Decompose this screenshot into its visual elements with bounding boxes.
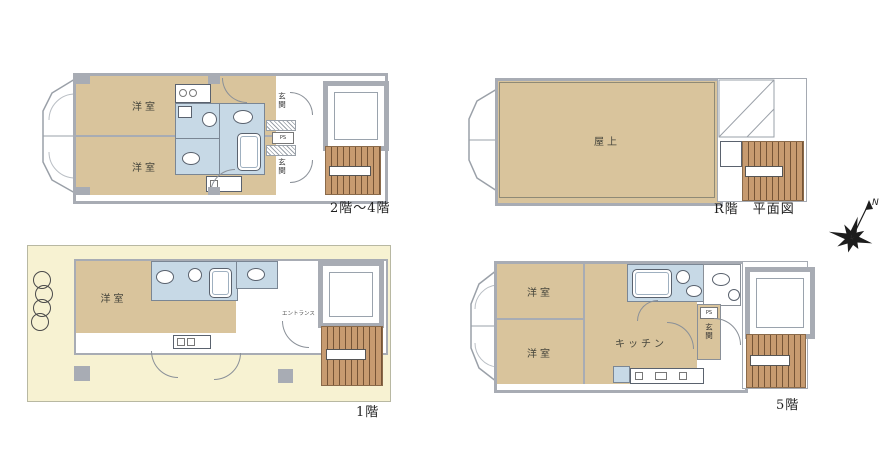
staircase bbox=[746, 334, 806, 388]
column bbox=[76, 76, 90, 84]
caption-1f: 1階 bbox=[356, 401, 379, 420]
caption-5f: 5階 bbox=[776, 394, 799, 413]
elevator-cab bbox=[756, 278, 804, 328]
shaft-hatch bbox=[266, 145, 296, 156]
column bbox=[208, 76, 220, 84]
elevator-cab bbox=[334, 92, 378, 140]
door-swing-icon bbox=[282, 321, 309, 348]
wall-segment bbox=[219, 104, 220, 174]
room-label: 洋室 bbox=[101, 290, 127, 305]
sink-icon bbox=[188, 268, 202, 282]
room-west-upper: 洋室 bbox=[497, 264, 583, 318]
balcony-bay-icon bbox=[468, 88, 498, 192]
open-shaft-icon bbox=[718, 79, 776, 139]
column bbox=[208, 187, 220, 195]
kitchenette-counter bbox=[175, 84, 211, 103]
wall-segment bbox=[176, 138, 219, 139]
room-label: 屋上 bbox=[594, 133, 620, 148]
staircase bbox=[321, 326, 383, 386]
entrance-label: 玄関 bbox=[705, 323, 713, 340]
toilet-icon bbox=[182, 152, 200, 165]
building-outline: 洋室 洋室 キッチン PS 玄関 bbox=[494, 261, 748, 393]
door-swing-icon bbox=[214, 353, 241, 380]
elevator-shaft bbox=[318, 261, 384, 328]
sink-icon bbox=[676, 270, 690, 284]
door-swing-icon bbox=[290, 92, 313, 115]
room-label: 洋室 bbox=[527, 284, 553, 299]
pipe-space-label: PS bbox=[272, 132, 294, 144]
compass-rose-icon: N bbox=[822, 196, 892, 266]
staircase bbox=[742, 141, 804, 201]
room-west-lower: 洋室 bbox=[497, 320, 583, 384]
stair-rail bbox=[326, 349, 366, 360]
caption-2f-4f: 2階〜4階 bbox=[330, 197, 391, 216]
bathroom-block bbox=[175, 103, 265, 175]
shaft-hatch bbox=[266, 120, 296, 131]
stair-rail bbox=[329, 166, 371, 176]
toilet-room bbox=[236, 261, 278, 289]
kitchen-label: キッチン bbox=[615, 335, 667, 350]
floorplan-sheet: { "sheet": { "background": "#ffffff" }, … bbox=[0, 0, 894, 472]
toilet-room bbox=[703, 264, 741, 306]
stair-hall-outline bbox=[717, 78, 807, 202]
room-label: 洋室 bbox=[527, 345, 553, 360]
bathroom-block bbox=[627, 264, 705, 302]
toilet-icon bbox=[156, 270, 174, 284]
north-label: N bbox=[872, 198, 879, 208]
washer-icon bbox=[178, 106, 192, 118]
bathtub-icon bbox=[209, 268, 232, 298]
kitchen-counter bbox=[630, 368, 704, 384]
stair-rail bbox=[745, 166, 783, 177]
stair-rail bbox=[750, 355, 790, 366]
landing-box bbox=[720, 141, 742, 167]
room-label: 洋室 bbox=[132, 159, 158, 174]
column bbox=[278, 369, 293, 383]
building-outline: 洋室 洋室 玄関 玄関 PS bbox=[73, 73, 388, 204]
door-swing-icon bbox=[290, 160, 313, 183]
toilet-icon bbox=[712, 273, 730, 286]
bathtub-icon bbox=[632, 269, 672, 298]
column bbox=[76, 187, 90, 195]
kitchenette-counter bbox=[173, 335, 211, 349]
stair-hall-outline bbox=[742, 261, 808, 389]
plan-1f: 洋室 エントランス bbox=[27, 245, 391, 402]
room-west: 洋室 bbox=[76, 261, 151, 333]
sink-icon bbox=[202, 112, 217, 127]
bathroom-block bbox=[151, 261, 238, 301]
room-label: 洋室 bbox=[132, 98, 158, 113]
plan-roof: 屋上 bbox=[468, 78, 808, 202]
toilet-icon bbox=[233, 110, 253, 124]
toilet-icon bbox=[686, 285, 702, 297]
shrub-icon bbox=[31, 313, 49, 331]
staircase bbox=[325, 146, 381, 195]
elevator-cab bbox=[329, 272, 373, 317]
caption-roof: R階 平面図 bbox=[714, 198, 795, 217]
kitchen-sink-icon bbox=[613, 366, 630, 383]
entrance-label: 玄関 bbox=[278, 158, 286, 175]
column bbox=[74, 366, 90, 381]
entrance-hall-label: エントランス bbox=[282, 309, 315, 317]
entrance-label: 玄関 bbox=[278, 92, 286, 109]
building-outline: 屋上 bbox=[495, 78, 723, 206]
balcony-bay-icon bbox=[42, 78, 76, 194]
bathtub-icon bbox=[237, 133, 261, 171]
plan-5f: 洋室 洋室 キッチン PS 玄関 bbox=[468, 258, 816, 390]
unit-floor-area bbox=[151, 299, 236, 333]
rooftop-area: 屋上 bbox=[499, 82, 715, 198]
plan-2f-4f: 洋室 洋室 玄関 玄関 PS bbox=[42, 73, 382, 200]
toilet-icon bbox=[247, 268, 265, 281]
sink-icon bbox=[728, 289, 740, 301]
door-swing-icon bbox=[151, 351, 178, 378]
elevator-shaft bbox=[745, 267, 815, 339]
elevator-shaft bbox=[323, 81, 389, 151]
